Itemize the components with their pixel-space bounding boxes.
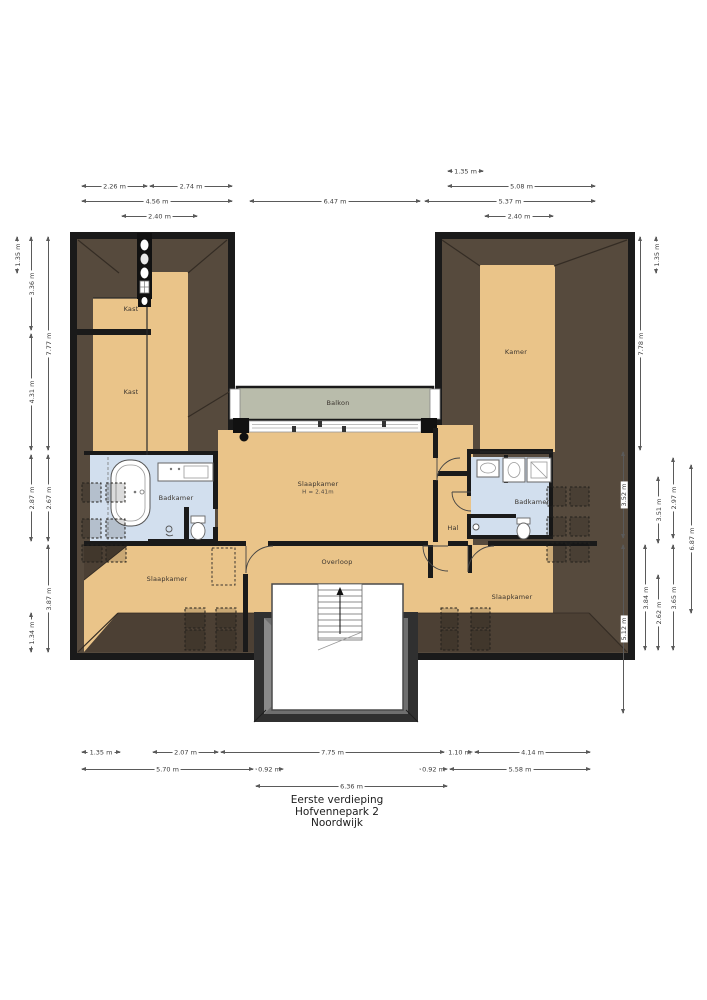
dim-top-4: 2.40 m xyxy=(122,216,197,217)
chimney xyxy=(137,233,152,307)
dim-bottom-9: 5.58 m xyxy=(450,769,590,770)
dim-bottom-2: 2.07 m xyxy=(153,752,218,753)
dim-left-5: 2.87 m xyxy=(31,455,32,541)
dim-bottom-7: 0.92 m xyxy=(256,769,283,770)
floorplan-page: Kast Kast Balkon Kamer Slaapkamer H = 2.… xyxy=(0,0,707,1000)
dim-right-3: 3.52 m xyxy=(623,452,624,538)
dim-right-1: 7.78 m xyxy=(640,237,641,450)
room-label-kamer: Kamer xyxy=(505,349,527,356)
plan-title-floor: Eerste verdieping xyxy=(187,795,487,807)
dim-right-9: 2.62 m xyxy=(658,575,659,650)
round-object xyxy=(240,433,249,442)
radiator-icon xyxy=(473,524,479,530)
vanity-left xyxy=(158,463,213,481)
dim-top-8: 5.37 m xyxy=(425,201,595,202)
dim-left-2: 3.36 m xyxy=(31,237,32,330)
room-label-hal: Hal xyxy=(447,525,458,532)
dim-left-4: 4.31 m xyxy=(31,334,32,450)
dim-left-6: 2.67 m xyxy=(48,455,49,541)
dim-bottom-5: 4.14 m xyxy=(475,752,590,753)
room-label-slaapkamer-left: Slaapkamer xyxy=(147,576,188,583)
dim-top-9: 2.40 m xyxy=(485,216,553,217)
dim-right-2: 1.35 m xyxy=(656,237,657,273)
room-label-kast-2: Kast xyxy=(124,389,139,396)
dim-top-3: 4.56 m xyxy=(82,201,232,202)
dim-bottom-3: 7.75 m xyxy=(221,752,444,753)
dim-bottom-4: 1.10 m xyxy=(447,752,472,753)
dim-top-6: 1.35 m xyxy=(448,171,483,172)
room-label-balkon: Balkon xyxy=(326,400,349,407)
room-label-kast-1: Kast xyxy=(124,306,139,313)
dim-top-2: 2.74 m xyxy=(150,186,232,187)
floorplan-graphic xyxy=(0,0,707,1000)
dim-bottom-1: 1.35 m xyxy=(82,752,120,753)
toilet-right xyxy=(517,518,530,539)
room-label-overloop: Overloop xyxy=(321,559,352,566)
room-label-slaapkamer-right: Slaapkamer xyxy=(492,594,533,601)
dim-right-5: 2.97 m xyxy=(673,458,674,538)
room-label-badkamer-right: Badkamer xyxy=(515,499,550,506)
dim-left-3: 7.77 m xyxy=(48,237,49,450)
room-label-slaapkamer-center-height: H = 2.41m xyxy=(302,490,334,496)
dim-left-1: 1.35 m xyxy=(17,237,18,273)
bidet-right xyxy=(503,458,525,482)
plan-title: Eerste verdieping Hofvennepark 2 Noordwi… xyxy=(187,795,487,830)
dim-top-5: 6.47 m xyxy=(250,201,420,202)
dim-top-1: 2.26 m xyxy=(82,186,147,187)
toilet-left xyxy=(191,516,205,540)
balcony xyxy=(230,387,440,433)
dim-bottom-6: 5.70 m xyxy=(82,769,253,770)
dim-bottom-10: 6.36 m xyxy=(256,786,447,787)
dim-right-7: 5.12 m xyxy=(623,545,624,713)
dim-right-4: 3.51 m xyxy=(658,477,659,543)
dim-right-6: 6.87 m xyxy=(691,465,692,613)
room-label-badkamer-left: Badkamer xyxy=(159,495,194,502)
dim-top-7: 5.08 m xyxy=(448,186,595,187)
sink-right xyxy=(477,460,499,477)
stairwell xyxy=(272,584,403,710)
dim-bottom-8: 0.92 m xyxy=(420,769,447,770)
plan-title-city: Noordwijk xyxy=(187,818,487,830)
dim-left-7: 3.87 m xyxy=(48,545,49,652)
dim-right-10: 3.65 m xyxy=(673,545,674,650)
dim-right-8: 3.84 m xyxy=(645,545,646,650)
dim-left-8: 1.34 m xyxy=(31,613,32,652)
shower-right xyxy=(527,458,551,482)
room-label-slaapkamer-center: Slaapkamer xyxy=(298,481,339,488)
